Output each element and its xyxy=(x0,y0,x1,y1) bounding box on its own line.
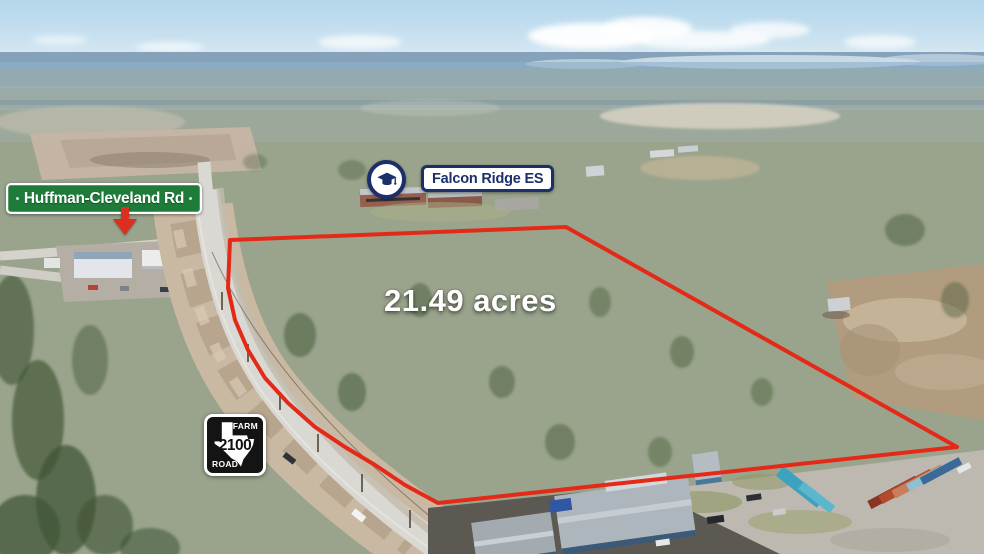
graduation-cap-icon xyxy=(367,160,406,199)
aerial-photo-scene xyxy=(0,0,984,554)
street-sign-label: Huffman-Cleveland Rd xyxy=(24,190,184,208)
school-badge: Falcon Ridge ES xyxy=(367,160,554,199)
farm-road-2100-sign: FARM 2100 ROAD xyxy=(204,414,266,476)
sign-bolt-icon xyxy=(189,197,192,200)
down-arrow-icon xyxy=(112,207,138,235)
sign-bolt-icon xyxy=(16,197,19,200)
farm-label: FARM xyxy=(233,421,258,431)
commercial-lot xyxy=(428,443,984,554)
annotated-aerial-photo: Huffman-Cleveland Rd Falcon Ridge ES 21.… xyxy=(0,0,984,554)
school-sign-label: Falcon Ridge ES xyxy=(421,165,554,192)
road-label: ROAD xyxy=(212,459,238,469)
road-number: 2100 xyxy=(219,437,251,455)
street-sign-huffman-cleveland: Huffman-Cleveland Rd xyxy=(6,183,202,214)
acreage-label: 21.49 acres xyxy=(384,283,557,319)
